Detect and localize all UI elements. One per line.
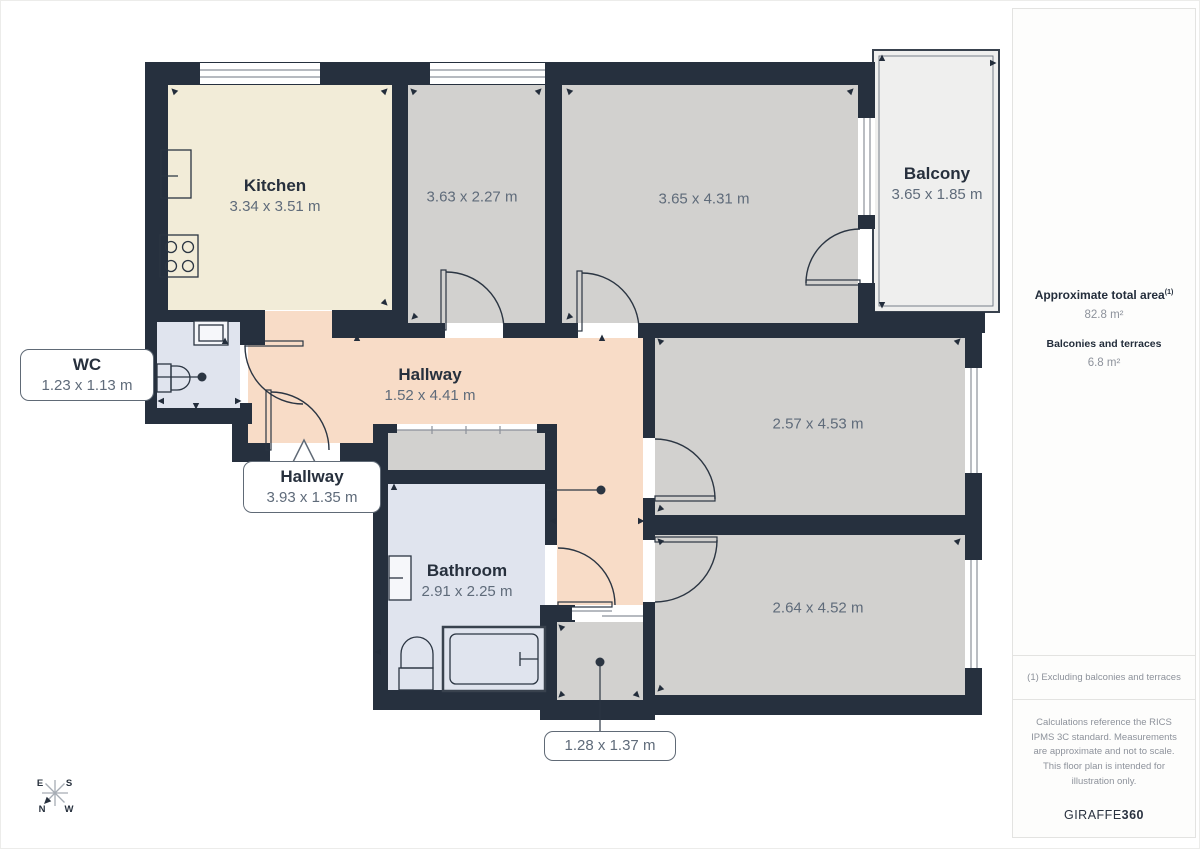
compass-s: S [66,778,72,789]
compass-e: E [37,778,43,789]
total-area-label: Approximate total area(1) [1013,288,1195,302]
window-room-c [965,368,982,473]
sidebar-footnote: (1) Excluding balconies and terraces [1013,656,1195,700]
compass: E S N W [37,778,74,815]
wc-sink [194,321,228,345]
hallway-entrance-floor [248,424,373,443]
room-b-floor [562,85,858,323]
wc-dims: 1.23 x 1.13 m [31,376,143,396]
disclaimer-text: Calculations reference the RICS IPMS 3C … [1027,716,1181,790]
info-sidebar: Approximate total area(1) 82.8 m² Balcon… [1012,8,1196,838]
balconies-label: Balconies and terraces [1013,338,1195,350]
room-c-floor [655,335,965,515]
balcony-outline [873,50,999,312]
brand-suffix: 360 [1122,808,1144,822]
dimension-arrow-icon [599,335,605,342]
bathroom-sink [389,556,411,600]
room-d-floor [655,535,965,695]
closet-floor [388,430,545,470]
total-area-superscript: (1) [1165,289,1174,296]
hallway-lower-name: Hallway [254,466,370,488]
total-area-value: 82.8 m² [1013,309,1195,321]
balconies-value: 6.8 m² [1013,357,1195,369]
storage-dims: 1.28 x 1.37 m [555,736,665,756]
sidebar-disclaimer-section: Calculations reference the RICS IPMS 3C … [1013,700,1195,837]
brand-logo: GIRAFFE360 [1027,806,1181,825]
hallway-lower-dims: 3.93 x 1.35 m [254,488,370,508]
total-area-label-text: Approximate total area [1035,288,1165,302]
brand-name: GIRAFFE [1064,808,1122,822]
hallway-callout-pointer [293,440,315,462]
floorplan-page: E S N W Kitchen 3.34 x 3.51 m 3.63 x 2.2… [0,0,1200,849]
window-room-d [965,560,982,668]
window-room-b-balcony [858,118,875,215]
room-kitchen-floor [168,85,392,310]
compass-n: N [39,804,46,815]
storage-door [572,607,643,620]
compass-w: W [65,804,74,815]
room-a-floor [408,85,545,323]
wc-callout: WC 1.23 x 1.13 m [20,349,154,401]
storage-callout: 1.28 x 1.37 m [544,731,676,761]
hallway-corridor-floor [557,424,643,605]
window-kitchen [200,63,320,84]
wc-name: WC [31,354,143,376]
hallway-lower-callout: Hallway 3.93 x 1.35 m [243,461,381,513]
window-room-a [430,63,545,84]
bathtub [443,627,545,691]
hallway-kitchen-opening-floor [265,311,332,340]
hallway-main-floor [248,338,643,424]
sidebar-area-section: Approximate total area(1) 82.8 m² Balcon… [1013,9,1195,656]
